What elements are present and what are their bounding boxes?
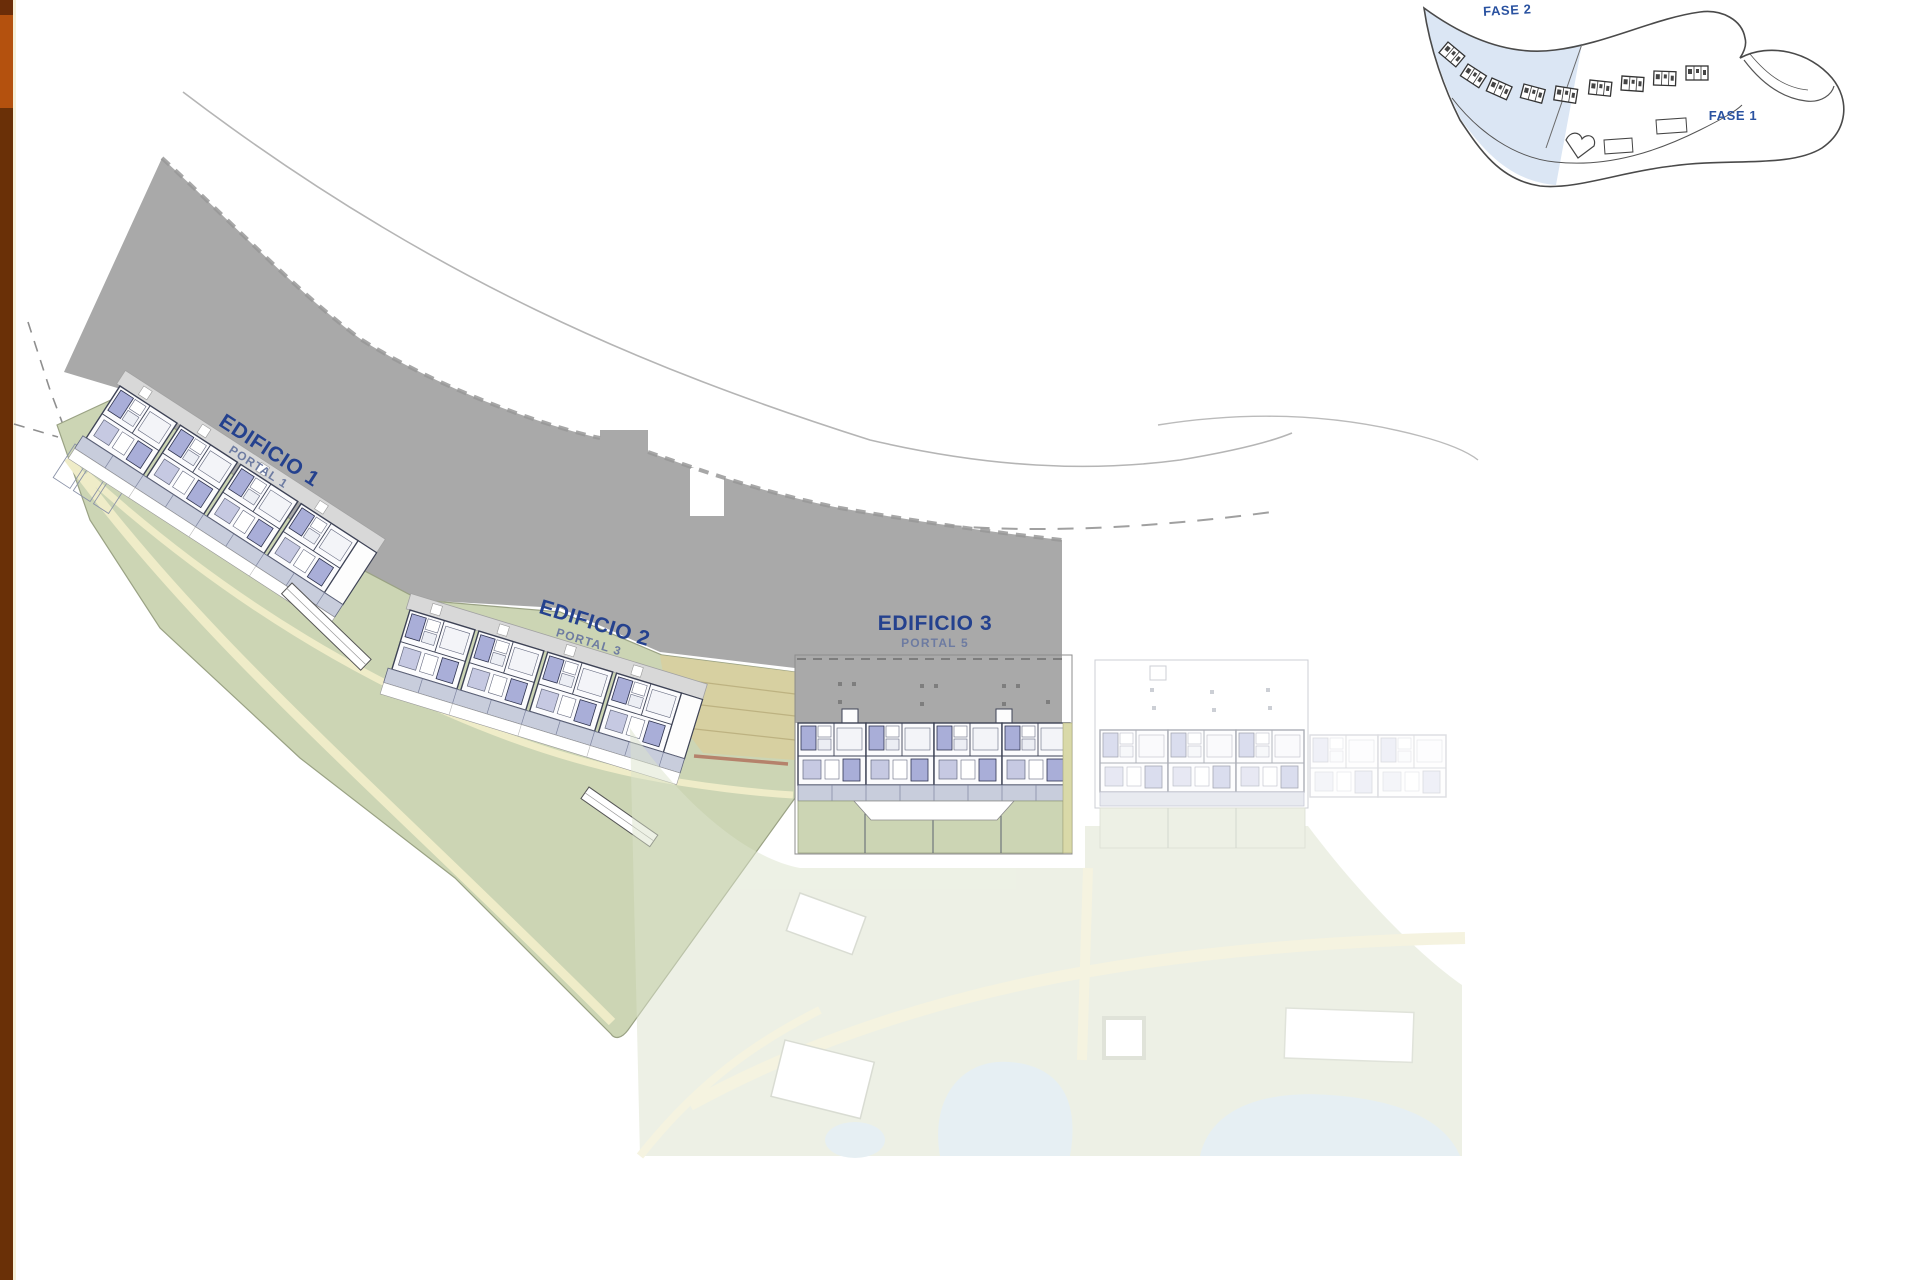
inset-pool-shape bbox=[1566, 133, 1595, 158]
site-plan-drawing bbox=[0, 0, 1920, 1280]
building-3-plan bbox=[798, 709, 1072, 853]
inset-map bbox=[1424, 8, 1844, 187]
faded-portal-plot bbox=[1095, 660, 1446, 848]
site-plan-page: EDIFICIO 1 PORTAL 1 EDIFICIO 2 PORTAL 3 … bbox=[0, 0, 1920, 1280]
khaki-strip bbox=[1063, 723, 1072, 853]
